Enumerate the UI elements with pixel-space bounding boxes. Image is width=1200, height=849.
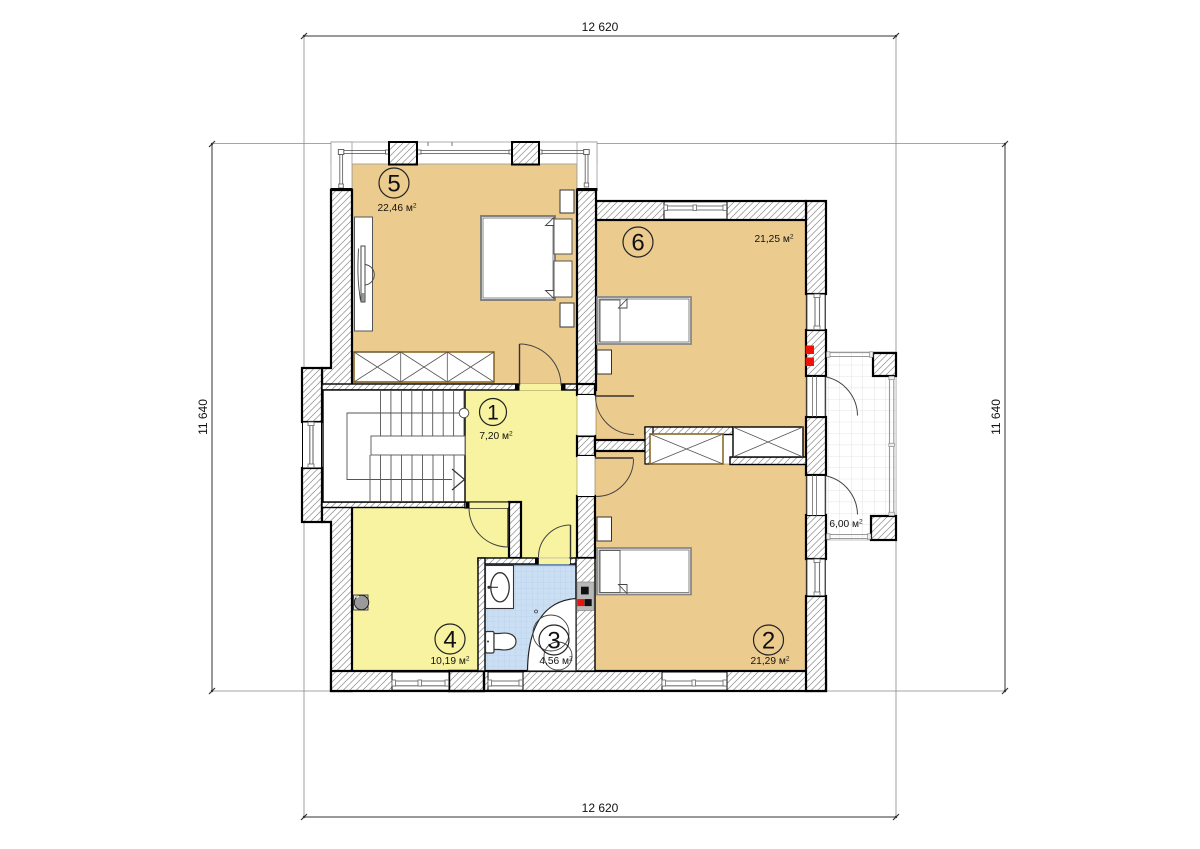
svg-text:1: 1 [487, 402, 499, 425]
svg-text:11 640: 11 640 [989, 399, 1003, 435]
svg-text:6: 6 [631, 230, 644, 257]
svg-text:12 620: 12 620 [582, 801, 619, 815]
svg-text:6,00 м2: 6,00 м2 [829, 518, 863, 530]
svg-text:4,56 м2: 4,56 м2 [539, 655, 573, 667]
svg-text:3: 3 [547, 628, 560, 655]
svg-text:21,25 м2: 21,25 м2 [755, 233, 794, 245]
svg-text:7,20 м2: 7,20 м2 [479, 430, 513, 442]
svg-text:5: 5 [387, 171, 400, 198]
svg-text:4: 4 [443, 627, 456, 654]
svg-text:22,46 м2: 22,46 м2 [378, 202, 417, 214]
svg-text:2: 2 [762, 628, 775, 655]
svg-text:12 620: 12 620 [582, 20, 619, 34]
svg-text:10,19 м2: 10,19 м2 [431, 655, 470, 667]
svg-text:11 640: 11 640 [196, 399, 210, 435]
svg-text:21,29 м2: 21,29 м2 [751, 655, 790, 667]
